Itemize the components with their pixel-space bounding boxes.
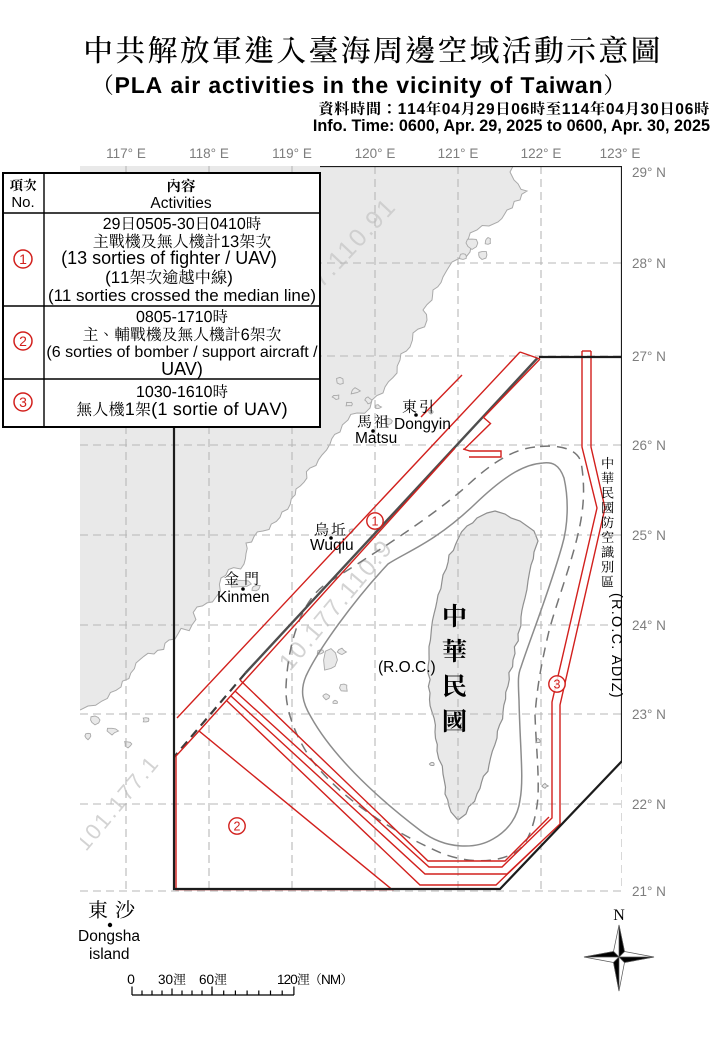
svg-text:(R.O.C. ADIZ): (R.O.C. ADIZ) [608, 593, 624, 699]
svg-text:117° E: 117° E [106, 146, 146, 161]
svg-text:121° E: 121° E [438, 146, 479, 161]
svg-text:(13 sorties of fighter / UAV): (13 sorties of fighter / UAV) [61, 248, 277, 268]
svg-text:Dongsha: Dongsha [78, 928, 140, 945]
svg-text:N: N [613, 907, 625, 924]
svg-text:24° N: 24° N [632, 618, 666, 633]
svg-text:26° N: 26° N [632, 438, 666, 453]
svg-text:3: 3 [554, 678, 561, 692]
svg-text:2: 2 [234, 820, 241, 834]
svg-text:23° N: 23° N [632, 707, 666, 722]
svg-text:123° E: 123° E [600, 146, 641, 161]
svg-text:25° N: 25° N [632, 528, 666, 543]
svg-text:22° N: 22° N [632, 797, 666, 812]
svg-text:27° N: 27° N [632, 349, 666, 364]
svg-text:Info. Time: 0600, Apr. 29, 202: Info. Time: 0600, Apr. 29, 2025 to 0600,… [313, 117, 710, 135]
svg-text:28° N: 28° N [632, 256, 666, 271]
svg-text:1: 1 [19, 251, 27, 267]
svg-text:Wuqiu: Wuqiu [310, 537, 354, 554]
svg-text:2: 2 [19, 333, 27, 349]
svg-text:Kinmen: Kinmen [217, 589, 270, 606]
svg-text:118° E: 118° E [189, 146, 229, 161]
svg-text:29° N: 29° N [632, 165, 666, 180]
svg-text:1: 1 [372, 515, 379, 529]
svg-text:21° N: 21° N [632, 884, 666, 899]
svg-text:3: 3 [19, 394, 27, 410]
svg-text:UAV): UAV) [161, 359, 203, 379]
svg-text:120° E: 120° E [355, 146, 396, 161]
svg-text:(11 sorties crossed the median: (11 sorties crossed the median line) [48, 286, 316, 305]
svg-text:122° E: 122° E [521, 146, 562, 161]
svg-text:119° E: 119° E [272, 146, 312, 161]
svg-text:Dongyin: Dongyin [394, 416, 451, 433]
svg-text:(R.O.C.): (R.O.C.) [378, 659, 436, 676]
svg-text:0: 0 [127, 971, 135, 987]
svg-text:island: island [89, 946, 130, 963]
svg-text:Matsu: Matsu [355, 430, 397, 447]
svg-text:Activities: Activities [150, 195, 211, 212]
svg-text:No.: No. [11, 194, 34, 211]
